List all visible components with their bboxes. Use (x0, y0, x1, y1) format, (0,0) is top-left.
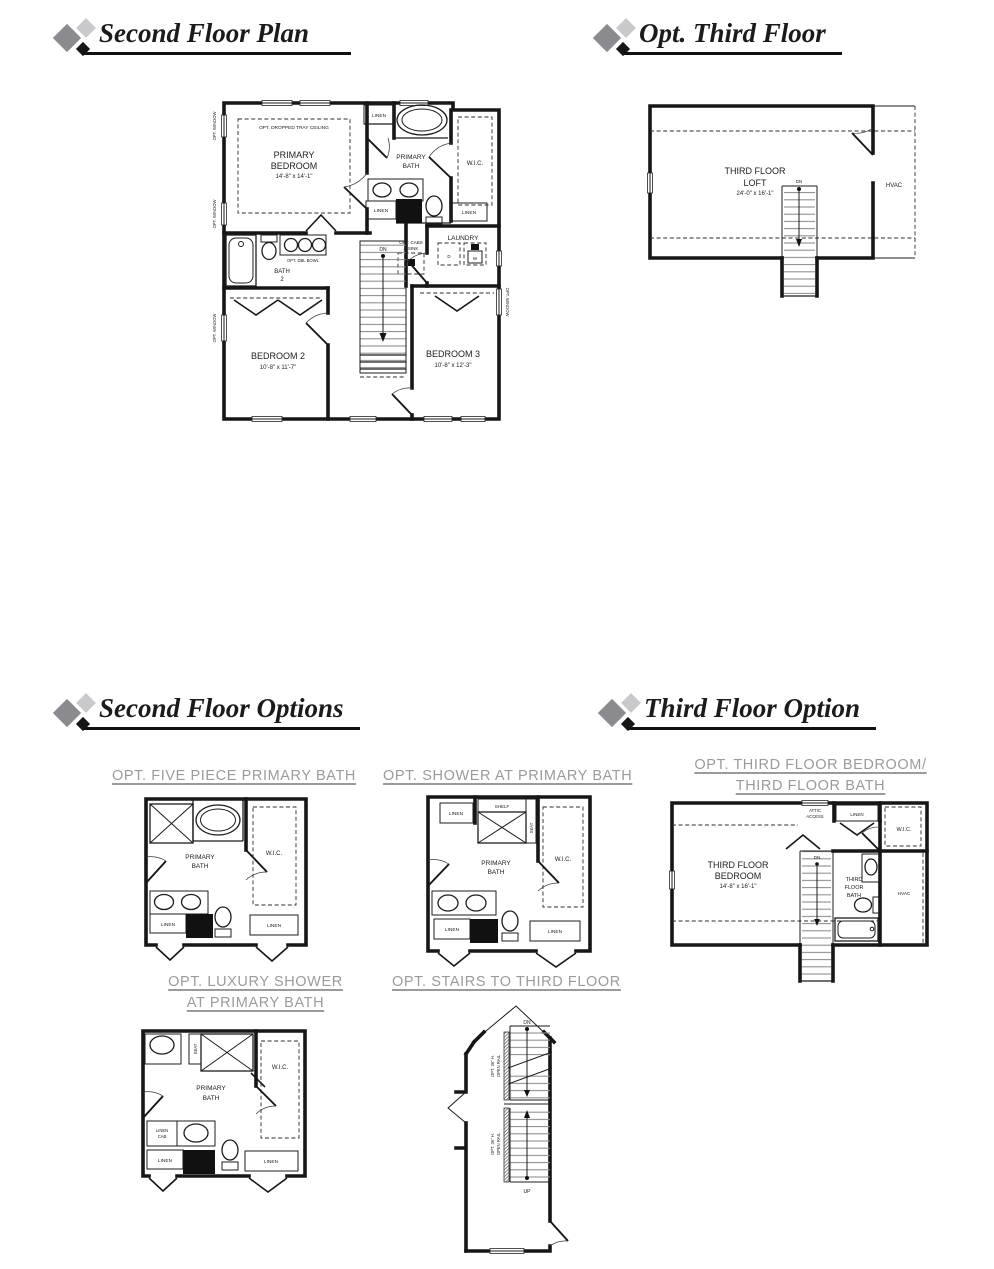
loft-label: THIRD FLOOR (724, 166, 786, 176)
option-title-shower: OPT. SHOWER AT PRIMARY BATH (383, 766, 623, 787)
option-title-third-bedroom: OPT. THIRD FLOOR BEDROOM/ THIRD FLOOR BA… (688, 755, 933, 797)
page-title: Opt. Third Floor (622, 17, 842, 55)
primary-bath-label: BATH (488, 869, 505, 876)
linen-label: LINEN (462, 210, 477, 216)
linen-label: LINEN (445, 927, 460, 933)
option-title-five-piece: OPT. FIVE PIECE PRIMARY BATH (100, 766, 368, 787)
toilet (502, 911, 518, 941)
dn-label: DN (379, 247, 387, 253)
primary-bedroom-dims: 14'-8" x 14'-1" (276, 174, 313, 180)
hvac-label: HVAC (898, 891, 911, 896)
seat-label: SEAT (193, 1043, 198, 1054)
sink (150, 1036, 174, 1054)
third-floor-loft-drawing: DN THIRD FLOOR LOFT 24'-0" x 16'-1" HVAC (645, 98, 940, 303)
sink (182, 895, 201, 910)
stairs: DN (360, 241, 406, 377)
header-second-floor-options: Second Floor Options (53, 692, 360, 736)
bedroom3-label: BEDROOM 3 (426, 349, 480, 359)
opt-third-bedroom-drawing: ATTIC ACCESS LINEN W.I.C. THIRD FLOOR BE… (658, 793, 943, 985)
linen-label: LINEN (161, 922, 176, 928)
linen-cab-label: CAB (158, 1134, 167, 1139)
open-rail-label: OPT. 36" H. (490, 1055, 495, 1077)
opt-luxury-shower-drawing: SEAT W.I.C. PRIMARY BATH LINEN CAB LINEN… (133, 1026, 313, 1196)
sink (865, 859, 877, 875)
opt-window-label: OPT. WINDOW (212, 112, 217, 141)
linen-label: LINEN (374, 208, 389, 214)
diamond-logo-icon (53, 692, 99, 736)
opt-dbl-bowl-label: OPT. DBL BOWL (287, 258, 320, 263)
attic-access-label: ATTIC (809, 808, 821, 813)
shower (478, 812, 526, 843)
diamond-logo-icon (598, 692, 644, 736)
toilet (222, 1140, 238, 1170)
bedroom2-dims: 10'-8" x 11'-7" (260, 365, 296, 371)
shelf-label: SHELF (495, 804, 510, 809)
bedroom3-dims: 10'-8" x 12'-3" (435, 363, 472, 369)
opt-window-label: OPT. WINDOW (212, 200, 217, 229)
dn-label: DN (796, 179, 803, 184)
page-title: Second Floor Options (82, 692, 360, 730)
dn-label: DN (523, 1020, 531, 1026)
third-bedroom-dims: 14'-8" x 16'-1" (720, 884, 757, 890)
primary-bath-label: PRIMARY (396, 154, 426, 161)
linen-label: LINEN (548, 929, 563, 935)
linen-label: LINEN (850, 812, 863, 817)
tub (193, 799, 243, 841)
stairs: DN (782, 179, 817, 296)
bath2-label: BATH (274, 269, 290, 275)
linen-label: LINEN (264, 1159, 279, 1165)
linen-cab-label: LINEN (156, 1128, 168, 1133)
up-label: UP (524, 1189, 532, 1195)
page-title: Third Floor Option (627, 692, 876, 730)
sink (184, 1124, 208, 1142)
hvac-label: HVAC (886, 183, 903, 189)
opt-window-label: OPT. WINDOW (212, 314, 217, 343)
sink (438, 895, 458, 911)
page-title: Second Floor Plan (82, 17, 351, 55)
linen-label: LINEN (449, 811, 464, 817)
loft-dims: 24'-0" x 16'-1" (737, 191, 774, 197)
bath2-tub (226, 235, 256, 286)
opt-stairs-drawing: DN OPT. 36" H. OPEN RAIL UP OPT. 36" H. … (430, 996, 615, 1268)
opt-five-piece-drawing: W.I.C. PRIMARY BATH LINEN LINEN (138, 795, 313, 963)
linen-label: LINEN (158, 1158, 173, 1164)
vanity (145, 1034, 181, 1064)
header-second-floor-plan: Second Floor Plan (53, 17, 351, 61)
loft-label: LOFT (743, 178, 767, 188)
opt-window-label: OPT. WINDOW (505, 288, 510, 317)
wic-label: W.I.C. (555, 857, 572, 863)
third-bath-label: FLOOR (845, 885, 864, 891)
floor-plan-sheet: Second Floor Plan Opt. Third Floor Secon… (0, 0, 994, 1269)
third-bedroom-label: THIRD FLOOR (707, 860, 769, 870)
primary-bedroom-label: PRIMARY (274, 150, 315, 160)
stairs-lower-flight: UP OPT. 36" H. OPEN RAIL (490, 1104, 550, 1195)
toilet (215, 907, 231, 937)
toilet (426, 196, 442, 224)
open-rail-label: OPEN RAIL (496, 1054, 501, 1077)
vanity (368, 179, 423, 201)
dryer-label: D (447, 254, 451, 259)
wic-label: W.I.C. (467, 161, 484, 167)
third-bath-label: THIRD (846, 877, 863, 883)
opt-shower-drawing: LINEN SHELF SEAT W.I.C. PRIMARY BATH LIN… (418, 791, 603, 967)
third-bedroom-label: BEDROOM (715, 871, 762, 881)
vanity (150, 891, 208, 914)
primary-bath-label: BATH (203, 1095, 220, 1102)
sink (155, 895, 174, 910)
shower (150, 804, 193, 843)
sink (400, 183, 418, 197)
second-floor-plan-drawing: OPT. WINDOW OPT. WINDOW OPT. WINDOW OPT.… (210, 93, 512, 427)
tray-ceiling-label: OPT. DROPPED TRAY CEILING (259, 125, 329, 131)
sink (373, 183, 391, 197)
dn-label: DN (814, 855, 821, 860)
wic-label: W.I.C. (897, 827, 912, 833)
option-title-stairs: OPT. STAIRS TO THIRD FLOOR (392, 972, 614, 993)
primary-bedroom-label: BEDROOM (271, 161, 318, 171)
toilet (855, 897, 881, 913)
header-third-floor-option: Third Floor Option (598, 692, 876, 736)
primary-bath-label: PRIMARY (196, 1085, 226, 1092)
tub (835, 918, 878, 941)
wic-label: W.I.C. (266, 851, 283, 857)
diamond-logo-icon (53, 17, 99, 61)
washer-label: W (473, 256, 478, 261)
diamond-logo-icon (593, 17, 639, 61)
seat-label: SEAT (529, 822, 534, 833)
bath2-toilet (261, 235, 277, 260)
bath2-label: 2 (280, 277, 284, 283)
linen-label: LINEN (372, 113, 387, 119)
open-rail-label: OPT. 36" H. (490, 1133, 495, 1155)
header-opt-third-floor: Opt. Third Floor (593, 17, 842, 61)
primary-bath-label: PRIMARY (481, 860, 511, 867)
laundry-label: LAUNDRY (448, 235, 480, 242)
stairs-upper-flight: DN OPT. 36" H. OPEN RAIL (490, 1020, 552, 1100)
wic-outline (261, 1041, 299, 1138)
linen-label: LINEN (267, 923, 282, 929)
attic-access-label: ACCESS (806, 814, 823, 819)
option-title-luxury-shower: OPT. LUXURY SHOWER AT PRIMARY BATH (138, 972, 373, 1014)
open-rail-label: OPEN RAIL (496, 1132, 501, 1155)
primary-bath-label: BATH (192, 863, 209, 870)
primary-bath-label: PRIMARY (185, 854, 215, 861)
wic-label: W.I.C. (272, 1065, 289, 1071)
primary-bath-label: BATH (403, 163, 420, 170)
sink (466, 895, 486, 911)
tub (397, 105, 447, 135)
stairs: DN (800, 851, 833, 981)
bedroom2-label: BEDROOM 2 (251, 351, 305, 361)
shower (201, 1034, 253, 1071)
